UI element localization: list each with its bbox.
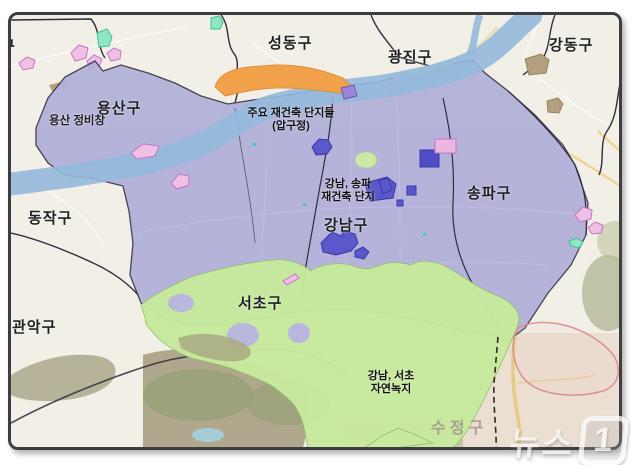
annotation-redev: 강남, 송파 재건축 단지	[307, 178, 389, 204]
news1-watermark-text: 뉴스	[508, 417, 578, 465]
annotation-apgujeong-line2: (압구정)	[272, 120, 310, 132]
district-label-seongdong: 성동구	[268, 32, 312, 53]
district-label-gangdong: 강동구	[549, 34, 593, 55]
district-label-sujeong: 수정구	[431, 414, 487, 438]
annotation-greenbelt-line2: 자연녹지	[371, 383, 411, 395]
annotation-greenbelt: 강남, 서초 자연녹지	[351, 370, 431, 396]
annotation-redev-line1: 강남, 송파	[325, 178, 372, 190]
annotation-redev-line2: 재건축 단지	[321, 191, 375, 203]
annotation-yongsan-depot: 용산 정비창	[49, 112, 105, 128]
district-label-songpa: 송파구	[467, 182, 511, 203]
annotation-apgujeong: 주요 재건축 단지들 (압구정)	[230, 107, 352, 133]
seoul-district-map: 구 성동구 광진구 강동구 용산구 동작구 관악구 서초구 강남구 송파구 수정…	[8, 12, 622, 450]
district-label-gwanak: 관악구	[12, 316, 56, 337]
news1-watermark-numeral: 1	[578, 416, 630, 465]
district-label-gangnam: 강남구	[324, 214, 368, 235]
district-label-seocho: 서초구	[238, 292, 282, 313]
district-label-partial: 구	[8, 35, 16, 56]
annotation-apgujeong-line1: 주요 재건축 단지들	[247, 107, 334, 119]
district-label-dongjak: 동작구	[28, 207, 72, 228]
district-label-gwangjin: 광진구	[388, 46, 432, 67]
map-graphic	[11, 15, 619, 447]
news-map-image: 구 성동구 광진구 강동구 용산구 동작구 관악구 서초구 강남구 송파구 수정…	[0, 0, 631, 465]
annotation-greenbelt-line1: 강남, 서초	[368, 370, 415, 382]
news1-watermark: 뉴스 1	[508, 416, 630, 465]
